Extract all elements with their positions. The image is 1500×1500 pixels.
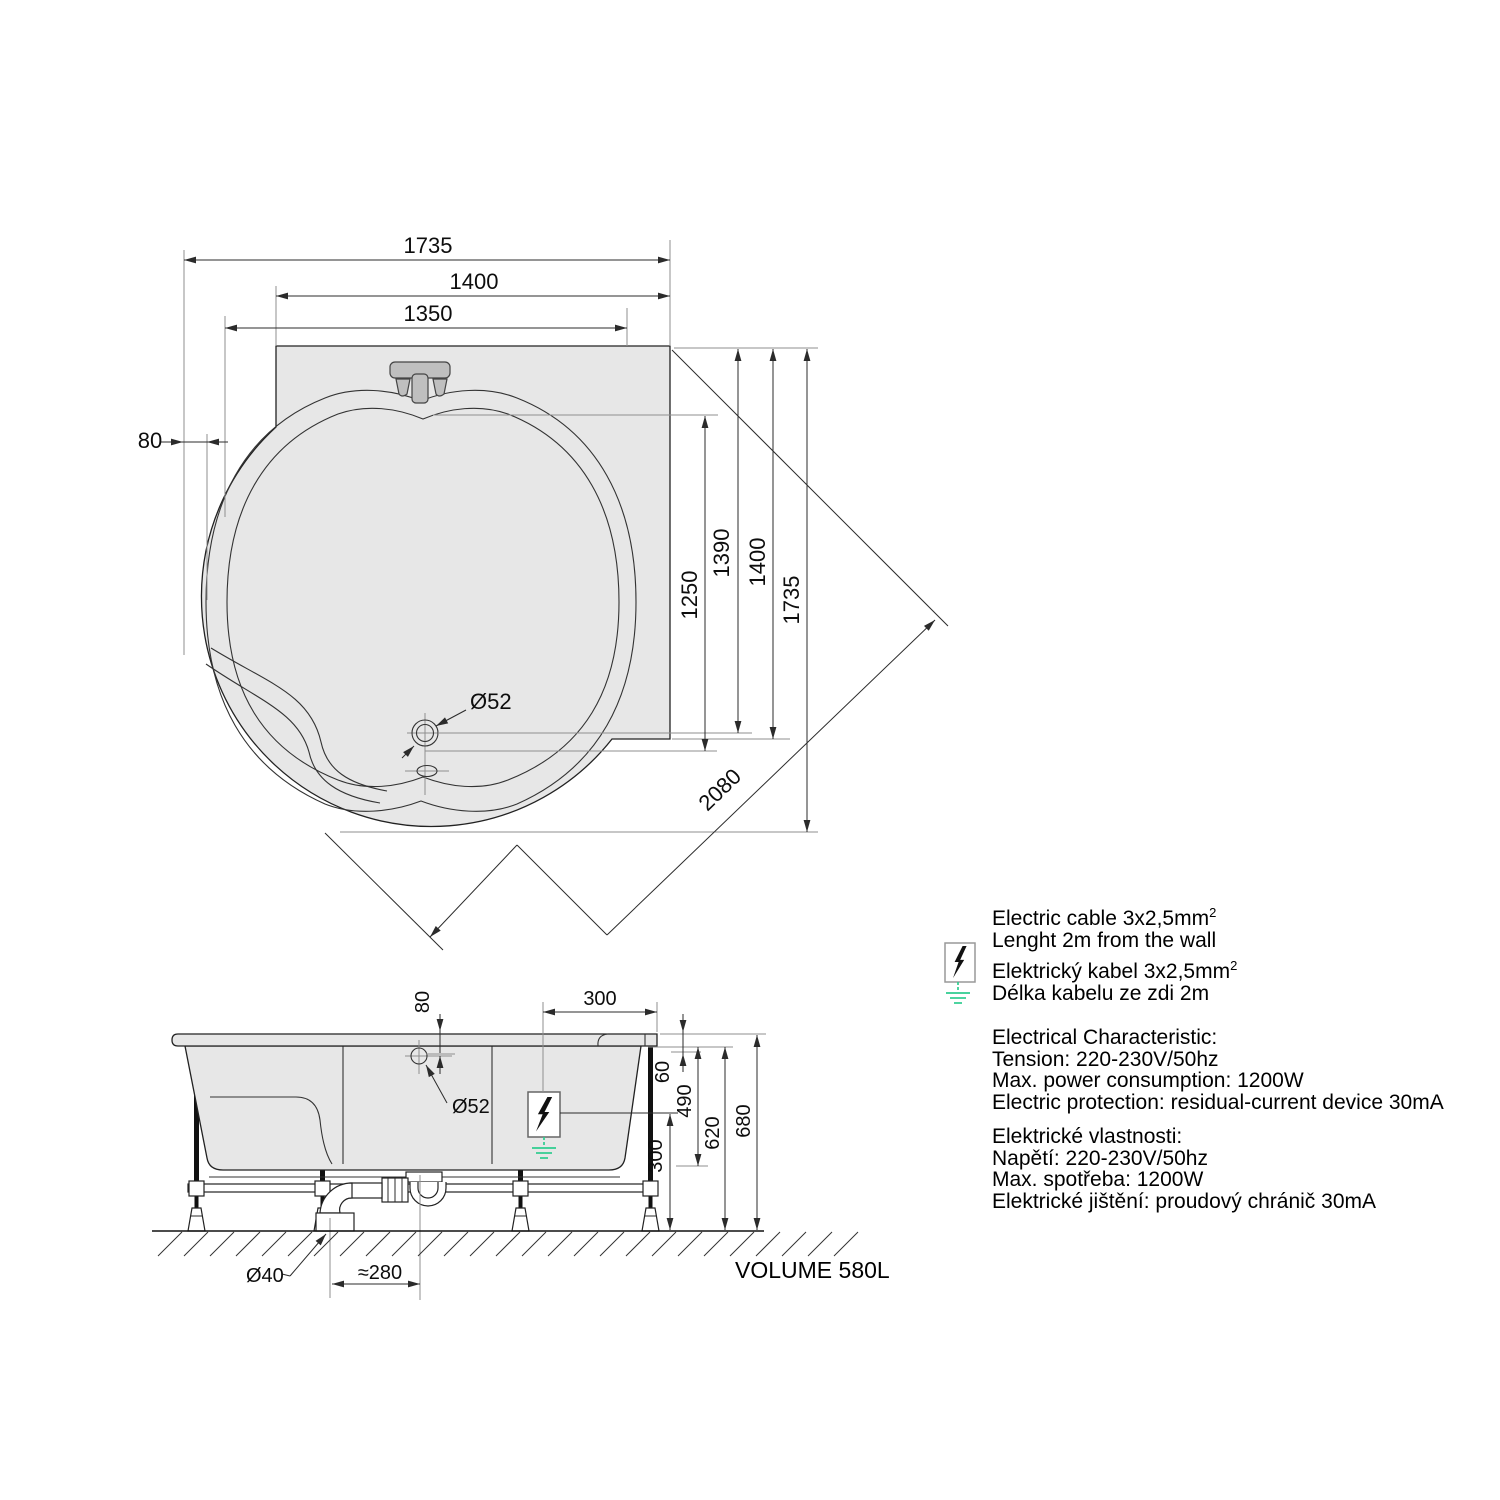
side-view: Ø52: [152, 988, 858, 1300]
note-cable-cz: Elektrický kabel 3x2,5mm2 Délka kabelu z…: [992, 955, 1237, 1005]
note-electrical-cz-power: Max. spotřeba: 1200W: [992, 1169, 1376, 1191]
drain-diameter-label: Ø52: [470, 689, 512, 714]
tub-rim: [172, 1034, 657, 1046]
volume-label: VOLUME 580L: [735, 1257, 890, 1284]
dim-620: 620: [702, 1116, 724, 1149]
dim-left-80: 80: [138, 428, 162, 453]
note-cable-en-line2: Lenght 2m from the wall: [992, 930, 1216, 952]
note-electrical-cz-tension: Napětí: 220-230V/50hz: [992, 1148, 1376, 1170]
dim-diagonal-2080: 2080: [693, 764, 746, 816]
ground-icon: [946, 982, 970, 1003]
note-cable-en-sup: 2: [1209, 905, 1216, 920]
note-electrical-en-tension: Tension: 220-230V/50hz: [992, 1049, 1444, 1071]
note-cable-cz-line1: Elektrický kabel 3x2,5mm: [992, 960, 1230, 983]
note-electrical-en-protection: Electric protection: residual-current de…: [992, 1092, 1444, 1114]
tub-deck-outline: [201, 346, 670, 827]
dim-right-1250: 1250: [677, 571, 702, 620]
dim-right-1400: 1400: [745, 538, 770, 587]
electric-note-icon: [945, 943, 975, 1003]
dim-right-1390: 1390: [709, 529, 734, 578]
note-electrical-en: Electrical Characteristic: Tension: 220-…: [992, 1027, 1444, 1113]
hole-diameter-label: Ø52: [452, 1096, 490, 1118]
note-electrical-cz: Elektrické vlastnosti: Napětí: 220-230V/…: [992, 1126, 1376, 1212]
dim-top-1735: 1735: [404, 233, 453, 258]
note-cable-en-line1: Electric cable 3x2,5mm: [992, 907, 1209, 930]
dim-490: 490: [674, 1084, 696, 1117]
note-cable-en: Electric cable 3x2,5mm2 Lenght 2m from t…: [992, 902, 1216, 952]
page: { "colors": { "background": "#ffffff", "…: [0, 0, 1500, 1500]
note-cable-cz-sup: 2: [1230, 958, 1237, 973]
dim-680: 680: [733, 1104, 755, 1137]
dim-rim-60: 60: [652, 1061, 674, 1083]
waste-diameter-label: Ø40: [246, 1265, 284, 1287]
dim-trap-280: ≈280: [358, 1262, 402, 1284]
dim-height-300: 300: [645, 1139, 667, 1172]
tub-body: [185, 1046, 641, 1170]
note-electrical-en-title: Electrical Characteristic:: [992, 1027, 1444, 1049]
floor-hatching: [158, 1232, 858, 1256]
adjustable-feet: [188, 1208, 659, 1231]
dim-top-1350: 1350: [404, 301, 453, 326]
note-electrical-cz-protection: Elektrické jištění: proudový chránič 30m…: [992, 1191, 1376, 1213]
dim-right-1735: 1735: [779, 576, 804, 625]
top-view: Ø52: [138, 233, 948, 950]
dim-cable-300: 300: [583, 988, 616, 1010]
dim-hole-80: 80: [412, 991, 434, 1013]
note-electrical-en-power: Max. power consumption: 1200W: [992, 1070, 1444, 1092]
dim-top-1400: 1400: [450, 269, 499, 294]
note-electrical-cz-title: Elektrické vlastnosti:: [992, 1126, 1376, 1148]
note-cable-cz-line2: Délka kabelu ze zdi 2m: [992, 983, 1237, 1005]
